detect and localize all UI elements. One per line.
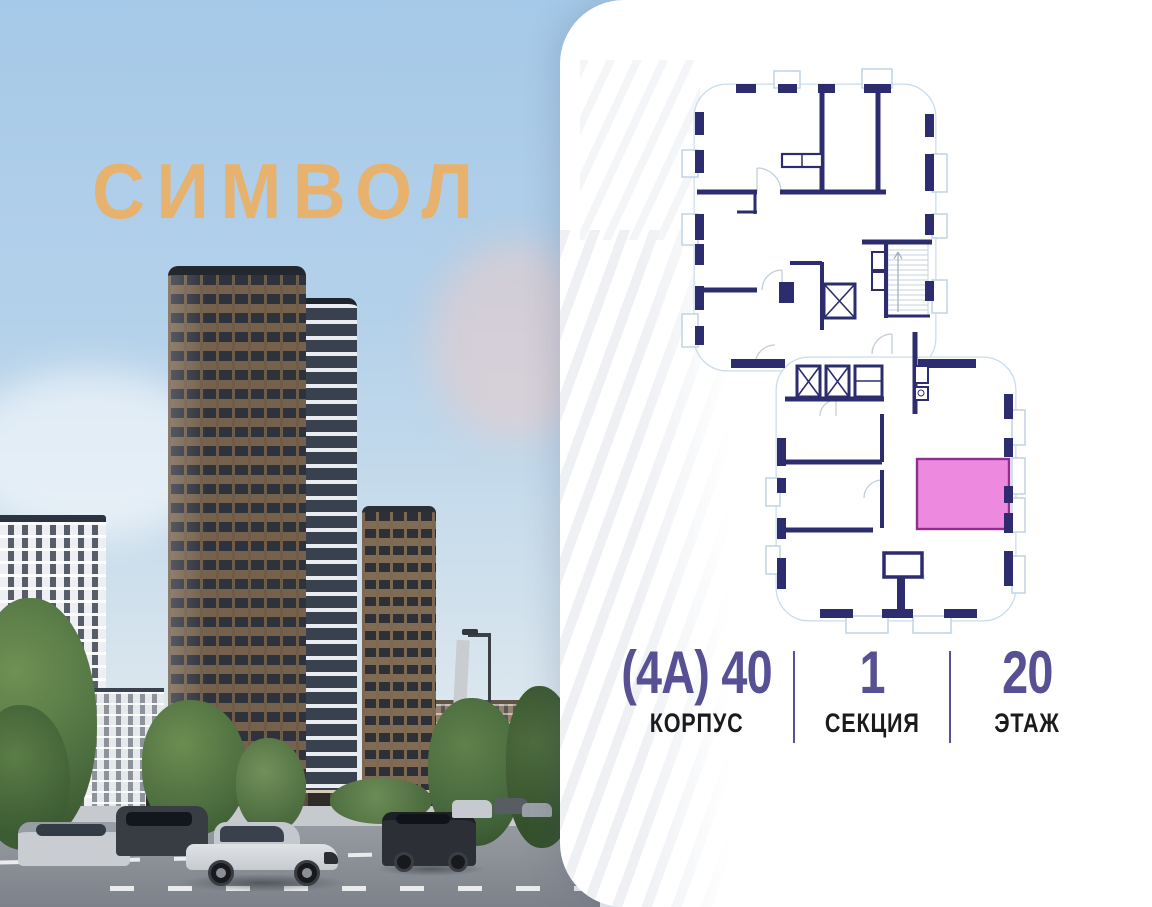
parked-car [18,822,130,866]
car-grille [324,852,338,864]
staircase [888,244,928,316]
car-hubcap [302,868,312,878]
car-window [396,814,450,824]
building-label: КОРПУС [650,708,744,739]
car-window [36,824,106,836]
car-wheel [394,852,414,872]
car-hubcap [216,868,226,878]
section-info: 1 СЕКЦИЯ [795,642,948,752]
floor-value: 20 [1002,642,1053,704]
tree [236,738,306,833]
selected-apartment-room[interactable] [917,459,1009,529]
car-window [126,812,192,826]
building-value: (4А) 40 [621,642,772,704]
building-info: (4А) 40 КОРПУС [600,642,793,752]
distant-car [452,800,492,818]
brand-logo: СИМВОЛ [92,146,484,237]
unit-info: (4А) 40 КОРПУС 1 СЕКЦИЯ 20 ЭТАЖ [600,642,1104,752]
distant-car [522,803,552,817]
car-window [220,826,284,842]
street-lamp-head [462,629,478,635]
section-value: 1 [859,642,884,704]
apartment-card: СИМВОЛ [0,0,1152,907]
section-label: СЕКЦИЯ [824,708,919,739]
floor-info: 20 ЭТАЖ [951,642,1104,752]
car-wheel [448,852,468,872]
floor-plan [650,55,1050,645]
floor-label: ЭТАЖ [995,708,1061,739]
